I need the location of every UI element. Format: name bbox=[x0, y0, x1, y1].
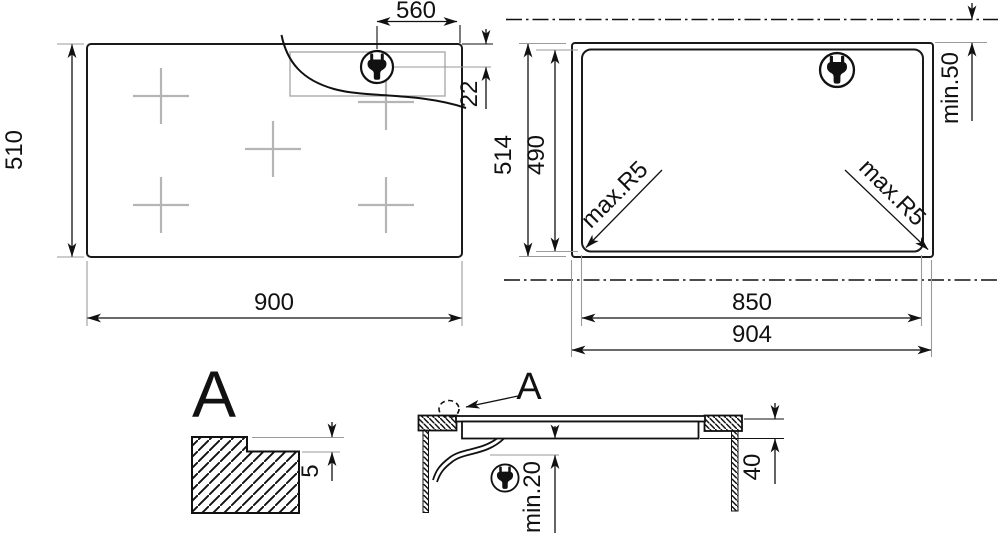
power-plug-icon bbox=[491, 464, 518, 491]
dimension-hob-width: 900 bbox=[87, 261, 462, 326]
min-20-label: min.20 bbox=[519, 461, 546, 533]
hob-outline bbox=[87, 44, 462, 257]
dim-514-label: 514 bbox=[490, 135, 517, 175]
worktop-cutout-view: max.R5 max.R5 514 490 min.50 bbox=[490, 3, 998, 357]
power-plug-icon bbox=[361, 51, 393, 83]
dim-5-label: 5 bbox=[297, 464, 324, 477]
dim-510-label: 510 bbox=[1, 130, 28, 170]
dimension-cutout-width: 850 bbox=[582, 255, 922, 326]
cabinet-panel-left bbox=[423, 431, 429, 513]
hob-body-section bbox=[462, 422, 699, 439]
dim-900-label: 900 bbox=[254, 289, 294, 316]
dimension-wall-clearance: min.50 bbox=[935, 3, 987, 124]
worktop-section-right bbox=[705, 416, 743, 432]
dim-560-label: 560 bbox=[396, 0, 436, 24]
installation-diagram: 560 22 510 900 bbox=[0, 0, 1000, 535]
worktop-recess-section bbox=[192, 437, 299, 513]
dimension-hob-depth: 510 bbox=[1, 44, 84, 257]
dim-904-label: 904 bbox=[732, 321, 772, 348]
detail-a-view: A 5 bbox=[192, 357, 344, 513]
dimension-plug-from-right: 560 bbox=[377, 0, 460, 49]
detail-a-leader bbox=[466, 396, 518, 407]
dim-40-label: 40 bbox=[739, 454, 766, 481]
dim-490-label: 490 bbox=[523, 135, 550, 175]
section-a-title: A bbox=[516, 366, 542, 408]
worktop-section-left bbox=[419, 416, 457, 431]
section-view: A min.20 40 bbox=[419, 366, 785, 533]
power-plug-icon bbox=[820, 53, 854, 87]
min-50-label: min.50 bbox=[937, 52, 964, 124]
dimension-cutout-depth: 490 bbox=[523, 50, 578, 252]
dim-22-label: 22 bbox=[456, 81, 483, 108]
dim-850-label: 850 bbox=[732, 289, 772, 316]
hob-top-view: 560 22 510 900 bbox=[1, 0, 493, 326]
installation-drawing-page: 560 22 510 900 bbox=[0, 0, 1000, 535]
cabinet-panel-right bbox=[732, 431, 739, 511]
detail-a-title: A bbox=[192, 357, 236, 431]
cutout-outline bbox=[582, 50, 923, 252]
